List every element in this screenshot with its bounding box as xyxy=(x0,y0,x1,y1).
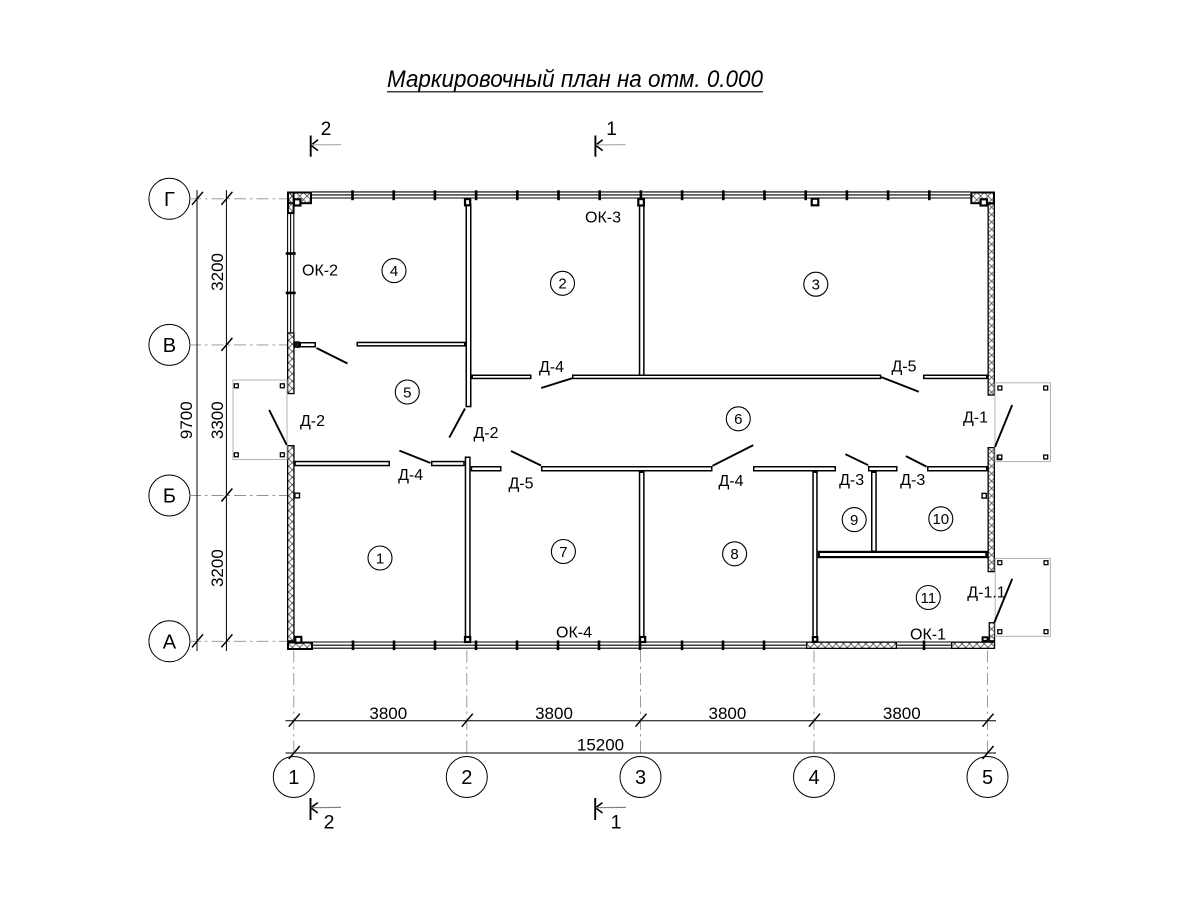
svg-text:Д-5: Д-5 xyxy=(508,475,533,492)
svg-text:А: А xyxy=(163,632,177,654)
svg-text:5: 5 xyxy=(403,384,411,401)
svg-text:15200: 15200 xyxy=(577,735,624,754)
svg-text:ОК-4: ОК-4 xyxy=(556,625,592,642)
svg-text:3200: 3200 xyxy=(208,253,227,291)
svg-text:4: 4 xyxy=(390,263,398,280)
svg-text:7: 7 xyxy=(559,544,567,561)
svg-text:Б: Б xyxy=(163,486,176,508)
svg-text:3800: 3800 xyxy=(535,704,573,723)
svg-text:Д-1.1: Д-1.1 xyxy=(967,584,1006,601)
svg-text:1: 1 xyxy=(611,812,622,834)
svg-text:Д-5: Д-5 xyxy=(891,358,916,375)
svg-text:1: 1 xyxy=(606,119,617,140)
svg-text:1: 1 xyxy=(288,767,299,789)
svg-text:Д-4: Д-4 xyxy=(539,359,564,376)
svg-text:3: 3 xyxy=(635,767,646,789)
svg-text:3: 3 xyxy=(812,277,820,294)
svg-text:Д-2: Д-2 xyxy=(473,425,498,442)
svg-text:Д-2: Д-2 xyxy=(300,413,325,430)
svg-text:Д-3: Д-3 xyxy=(839,472,864,489)
svg-text:ОК-3: ОК-3 xyxy=(585,210,621,227)
svg-text:11: 11 xyxy=(921,590,937,607)
svg-text:4: 4 xyxy=(808,767,819,789)
svg-text:2: 2 xyxy=(321,119,332,140)
svg-text:2: 2 xyxy=(558,276,566,293)
svg-text:Д-4: Д-4 xyxy=(398,467,423,484)
svg-text:1: 1 xyxy=(376,550,384,567)
svg-text:3800: 3800 xyxy=(883,704,921,723)
svg-text:Д-1: Д-1 xyxy=(963,410,988,427)
svg-text:Д-4: Д-4 xyxy=(718,473,743,490)
svg-text:9: 9 xyxy=(850,512,858,529)
svg-text:2: 2 xyxy=(324,812,335,834)
svg-text:3800: 3800 xyxy=(369,704,407,723)
svg-text:Маркировочный план на отм. 0.0: Маркировочный план на отм. 0.000 xyxy=(387,66,764,93)
svg-text:Д-3: Д-3 xyxy=(900,472,925,489)
svg-text:10: 10 xyxy=(932,511,949,528)
svg-text:3300: 3300 xyxy=(208,401,227,439)
svg-text:ОК-2: ОК-2 xyxy=(302,263,338,280)
svg-text:В: В xyxy=(163,335,176,357)
svg-text:ОК-1: ОК-1 xyxy=(910,627,946,644)
svg-text:8: 8 xyxy=(730,546,738,563)
svg-text:3800: 3800 xyxy=(708,704,746,723)
svg-text:2: 2 xyxy=(461,767,472,789)
svg-text:9700: 9700 xyxy=(177,401,196,439)
svg-text:Г: Г xyxy=(164,189,175,211)
svg-text:5: 5 xyxy=(982,767,993,789)
svg-text:3200: 3200 xyxy=(208,549,227,587)
svg-text:6: 6 xyxy=(734,411,742,428)
